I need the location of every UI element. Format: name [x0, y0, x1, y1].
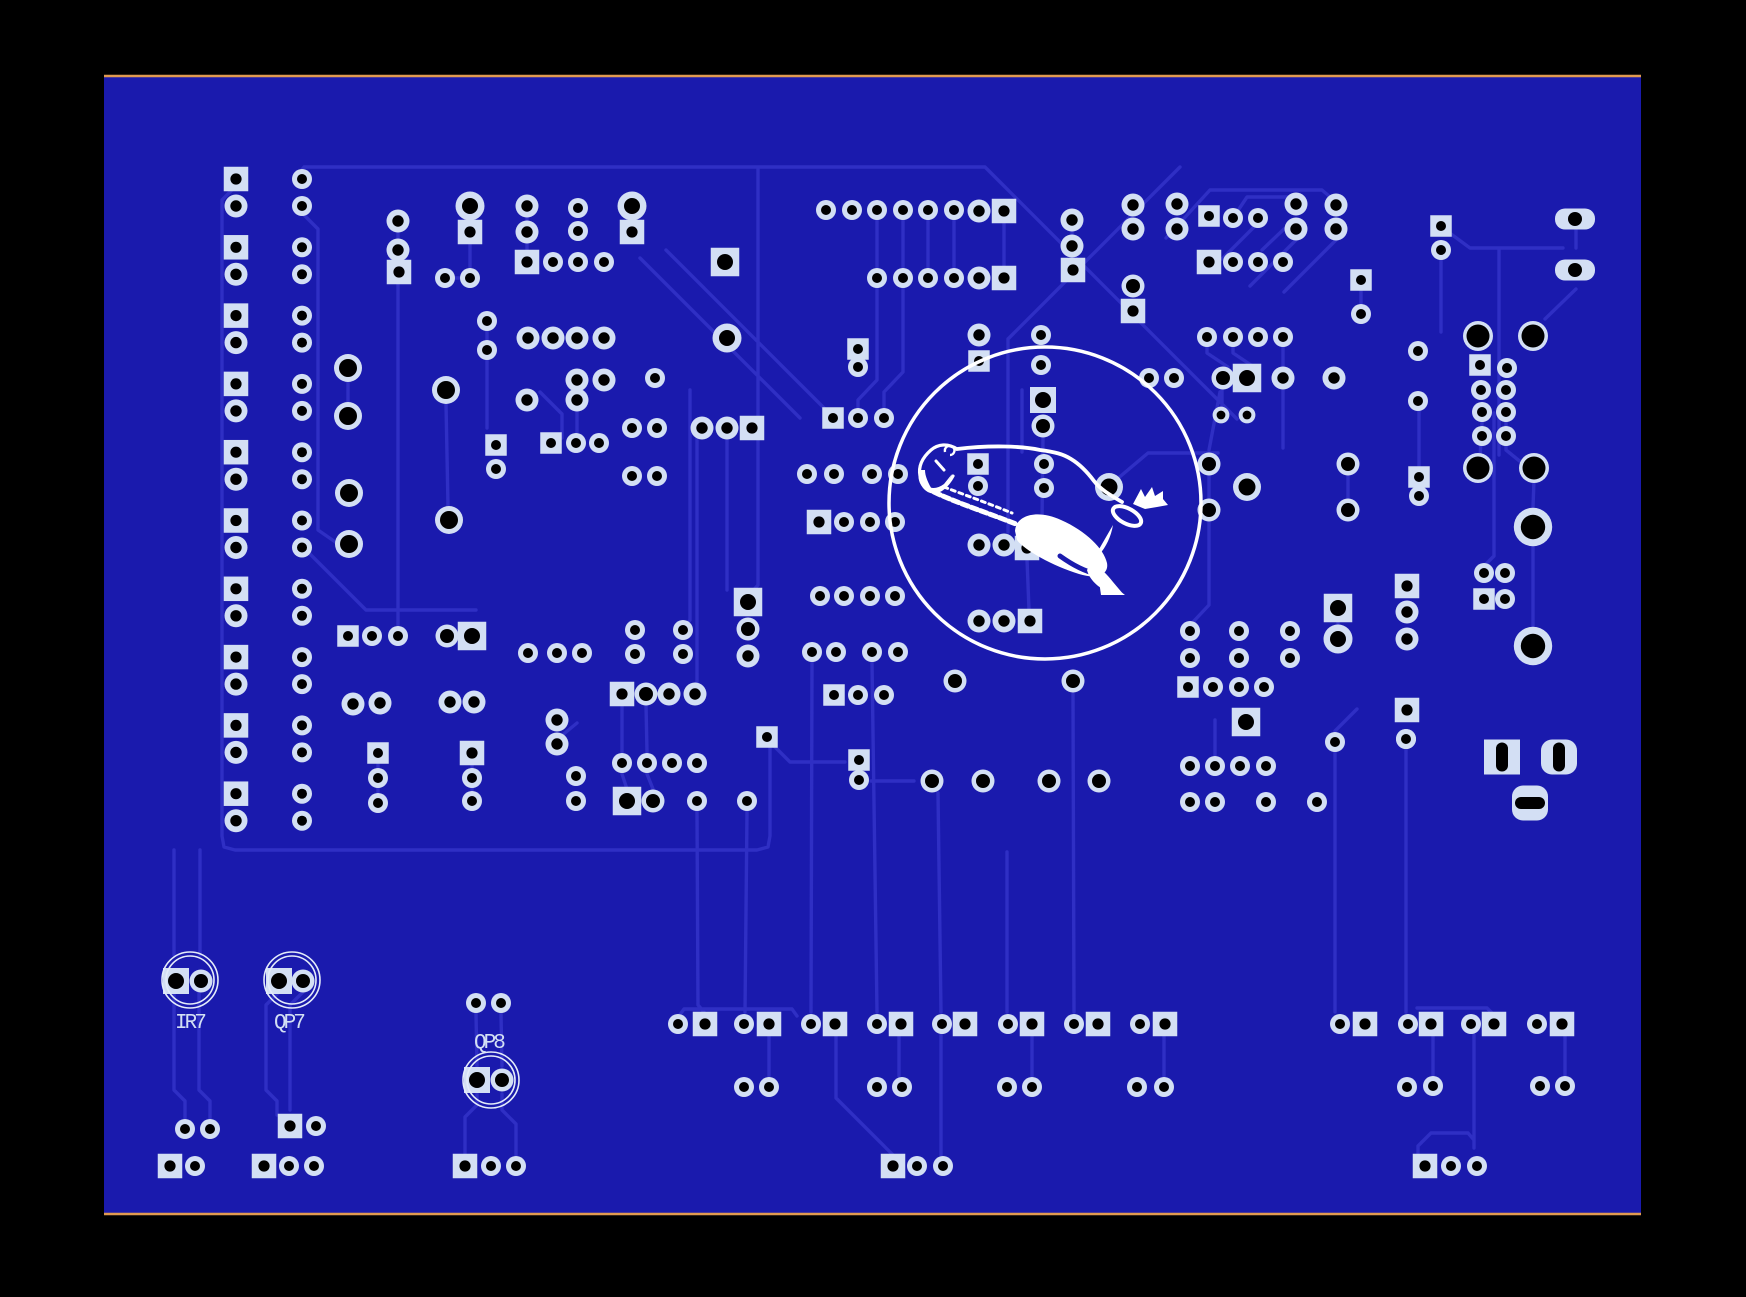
svg-text:QP7: QP7 — [274, 1012, 304, 1035]
svg-text:QP8: QP8 — [474, 1032, 505, 1055]
svg-text:IR7: IR7 — [175, 1012, 205, 1035]
